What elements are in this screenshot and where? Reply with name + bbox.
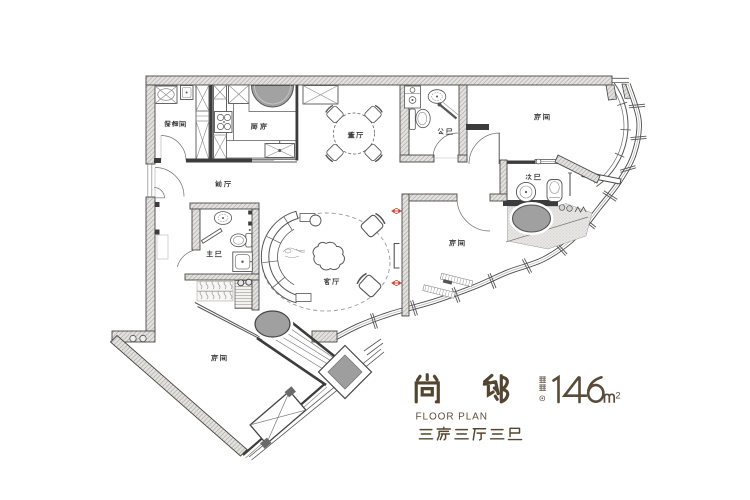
svg-text:2: 2 [616,391,621,401]
svg-text:FLOOR PLAN: FLOOR PLAN [416,412,488,423]
